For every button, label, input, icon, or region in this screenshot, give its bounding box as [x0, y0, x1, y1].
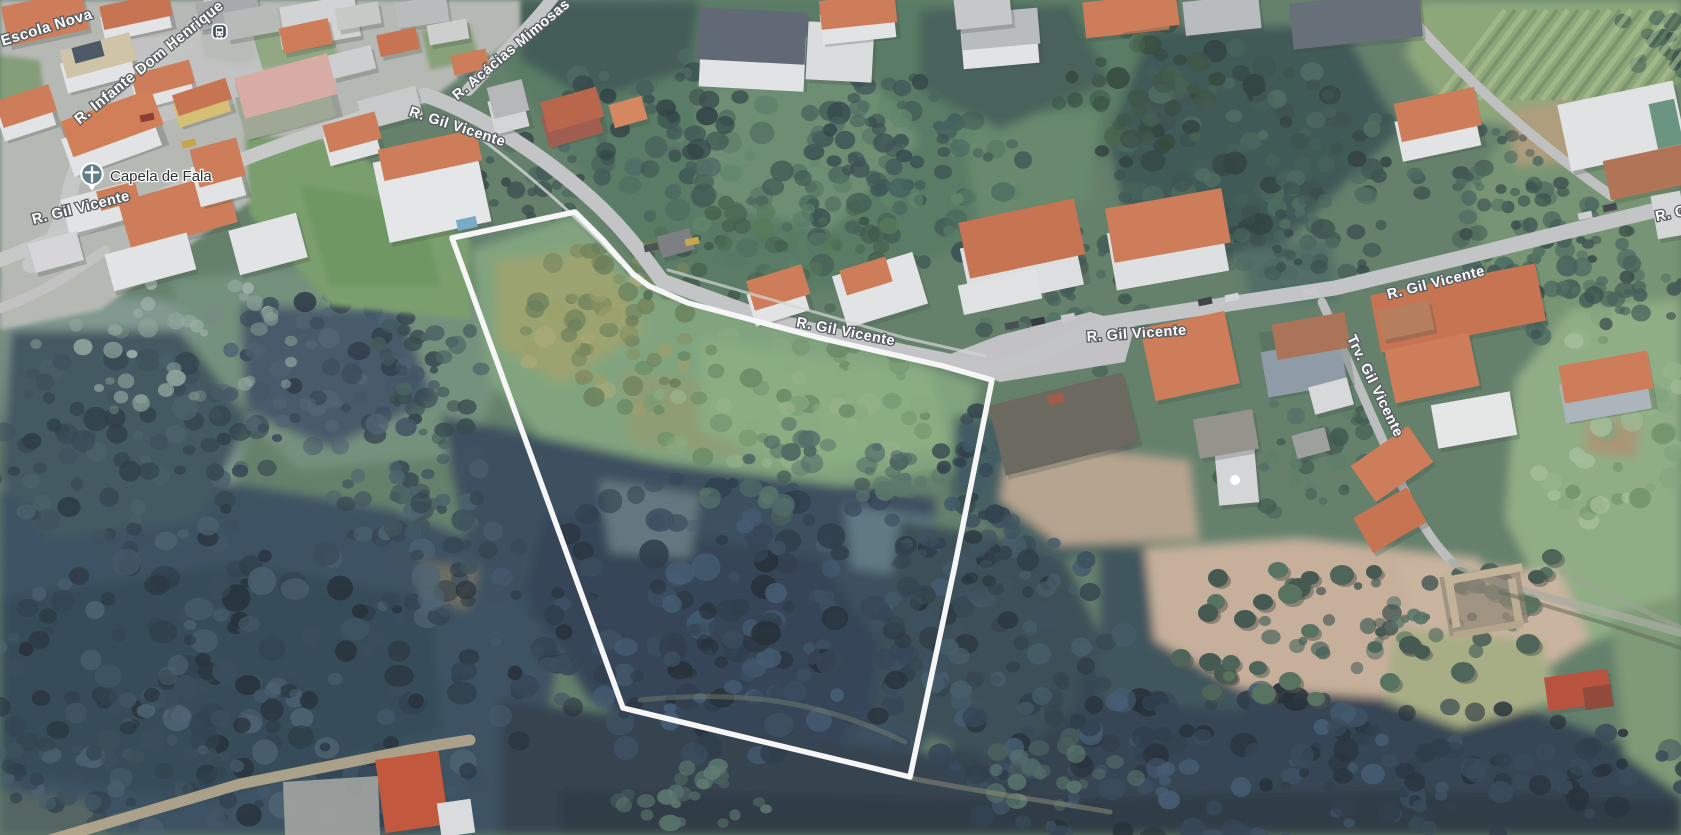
- svg-text:Capela de Fala: Capela de Fala: [110, 168, 212, 185]
